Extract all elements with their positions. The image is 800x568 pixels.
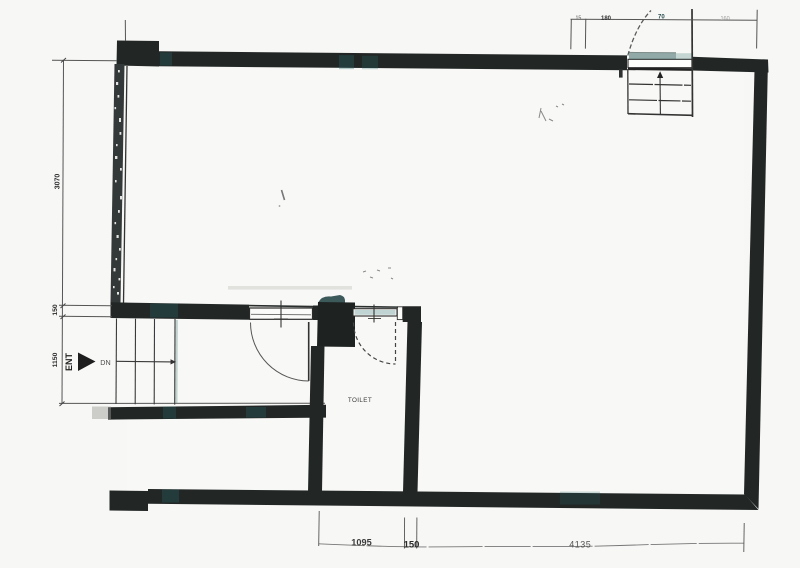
svg-text:4135: 4135: [569, 540, 591, 550]
svg-text:15: 15: [576, 16, 582, 22]
svg-text:160: 160: [721, 16, 730, 22]
svg-text:ENT: ENT: [64, 352, 74, 371]
svg-text:DN: DN: [100, 358, 110, 367]
svg-text:150: 150: [404, 540, 420, 551]
svg-text:150: 150: [52, 304, 59, 316]
svg-text:3070: 3070: [55, 174, 62, 190]
svg-text:TOILET: TOILET: [348, 397, 372, 404]
svg-text:1095: 1095: [351, 538, 371, 548]
svg-text:1150: 1150: [52, 352, 59, 367]
svg-text:70: 70: [658, 14, 665, 20]
svg-text:180: 180: [601, 16, 612, 22]
